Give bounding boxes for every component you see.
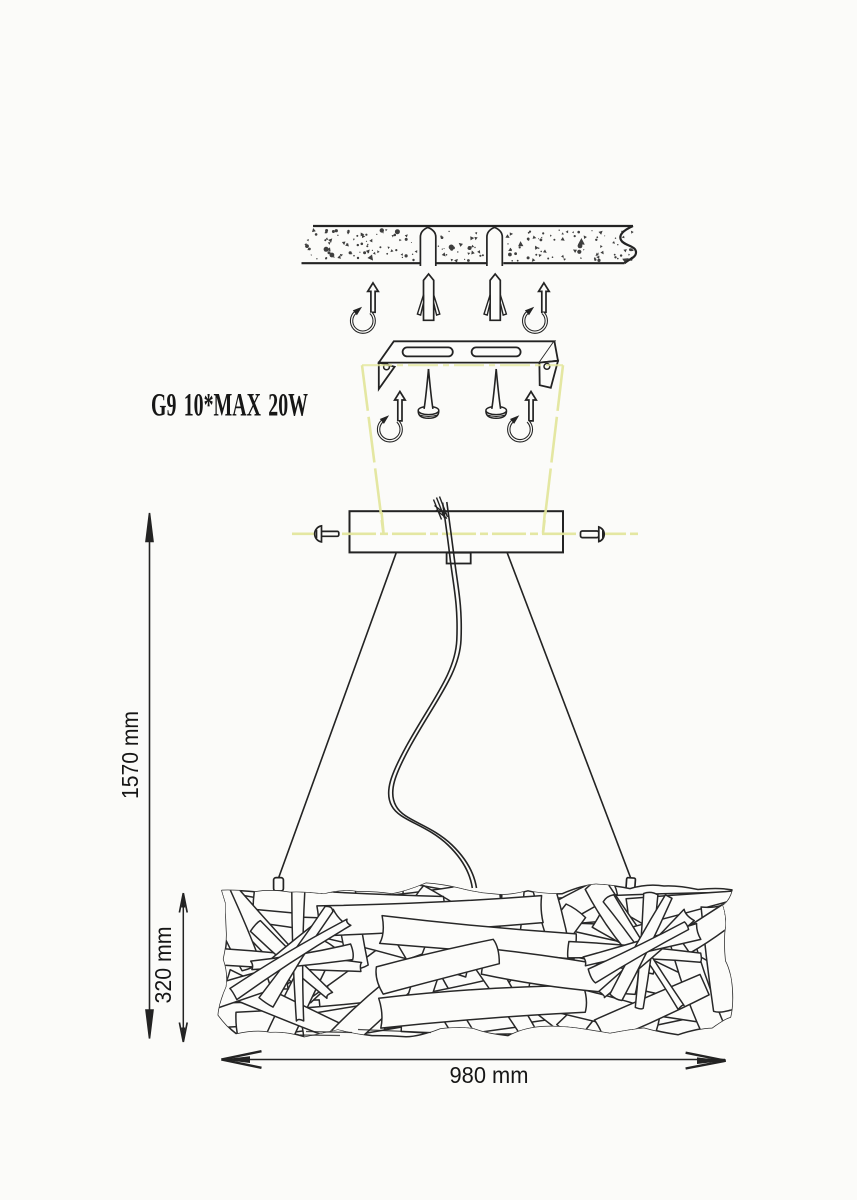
svg-text:G9 10*MAX 20W: G9 10*MAX 20W: [151, 388, 308, 424]
svg-text:1570 mm: 1570 mm: [117, 711, 143, 799]
svg-text:980 mm: 980 mm: [450, 1062, 529, 1088]
svg-text:320 mm: 320 mm: [150, 927, 176, 1004]
